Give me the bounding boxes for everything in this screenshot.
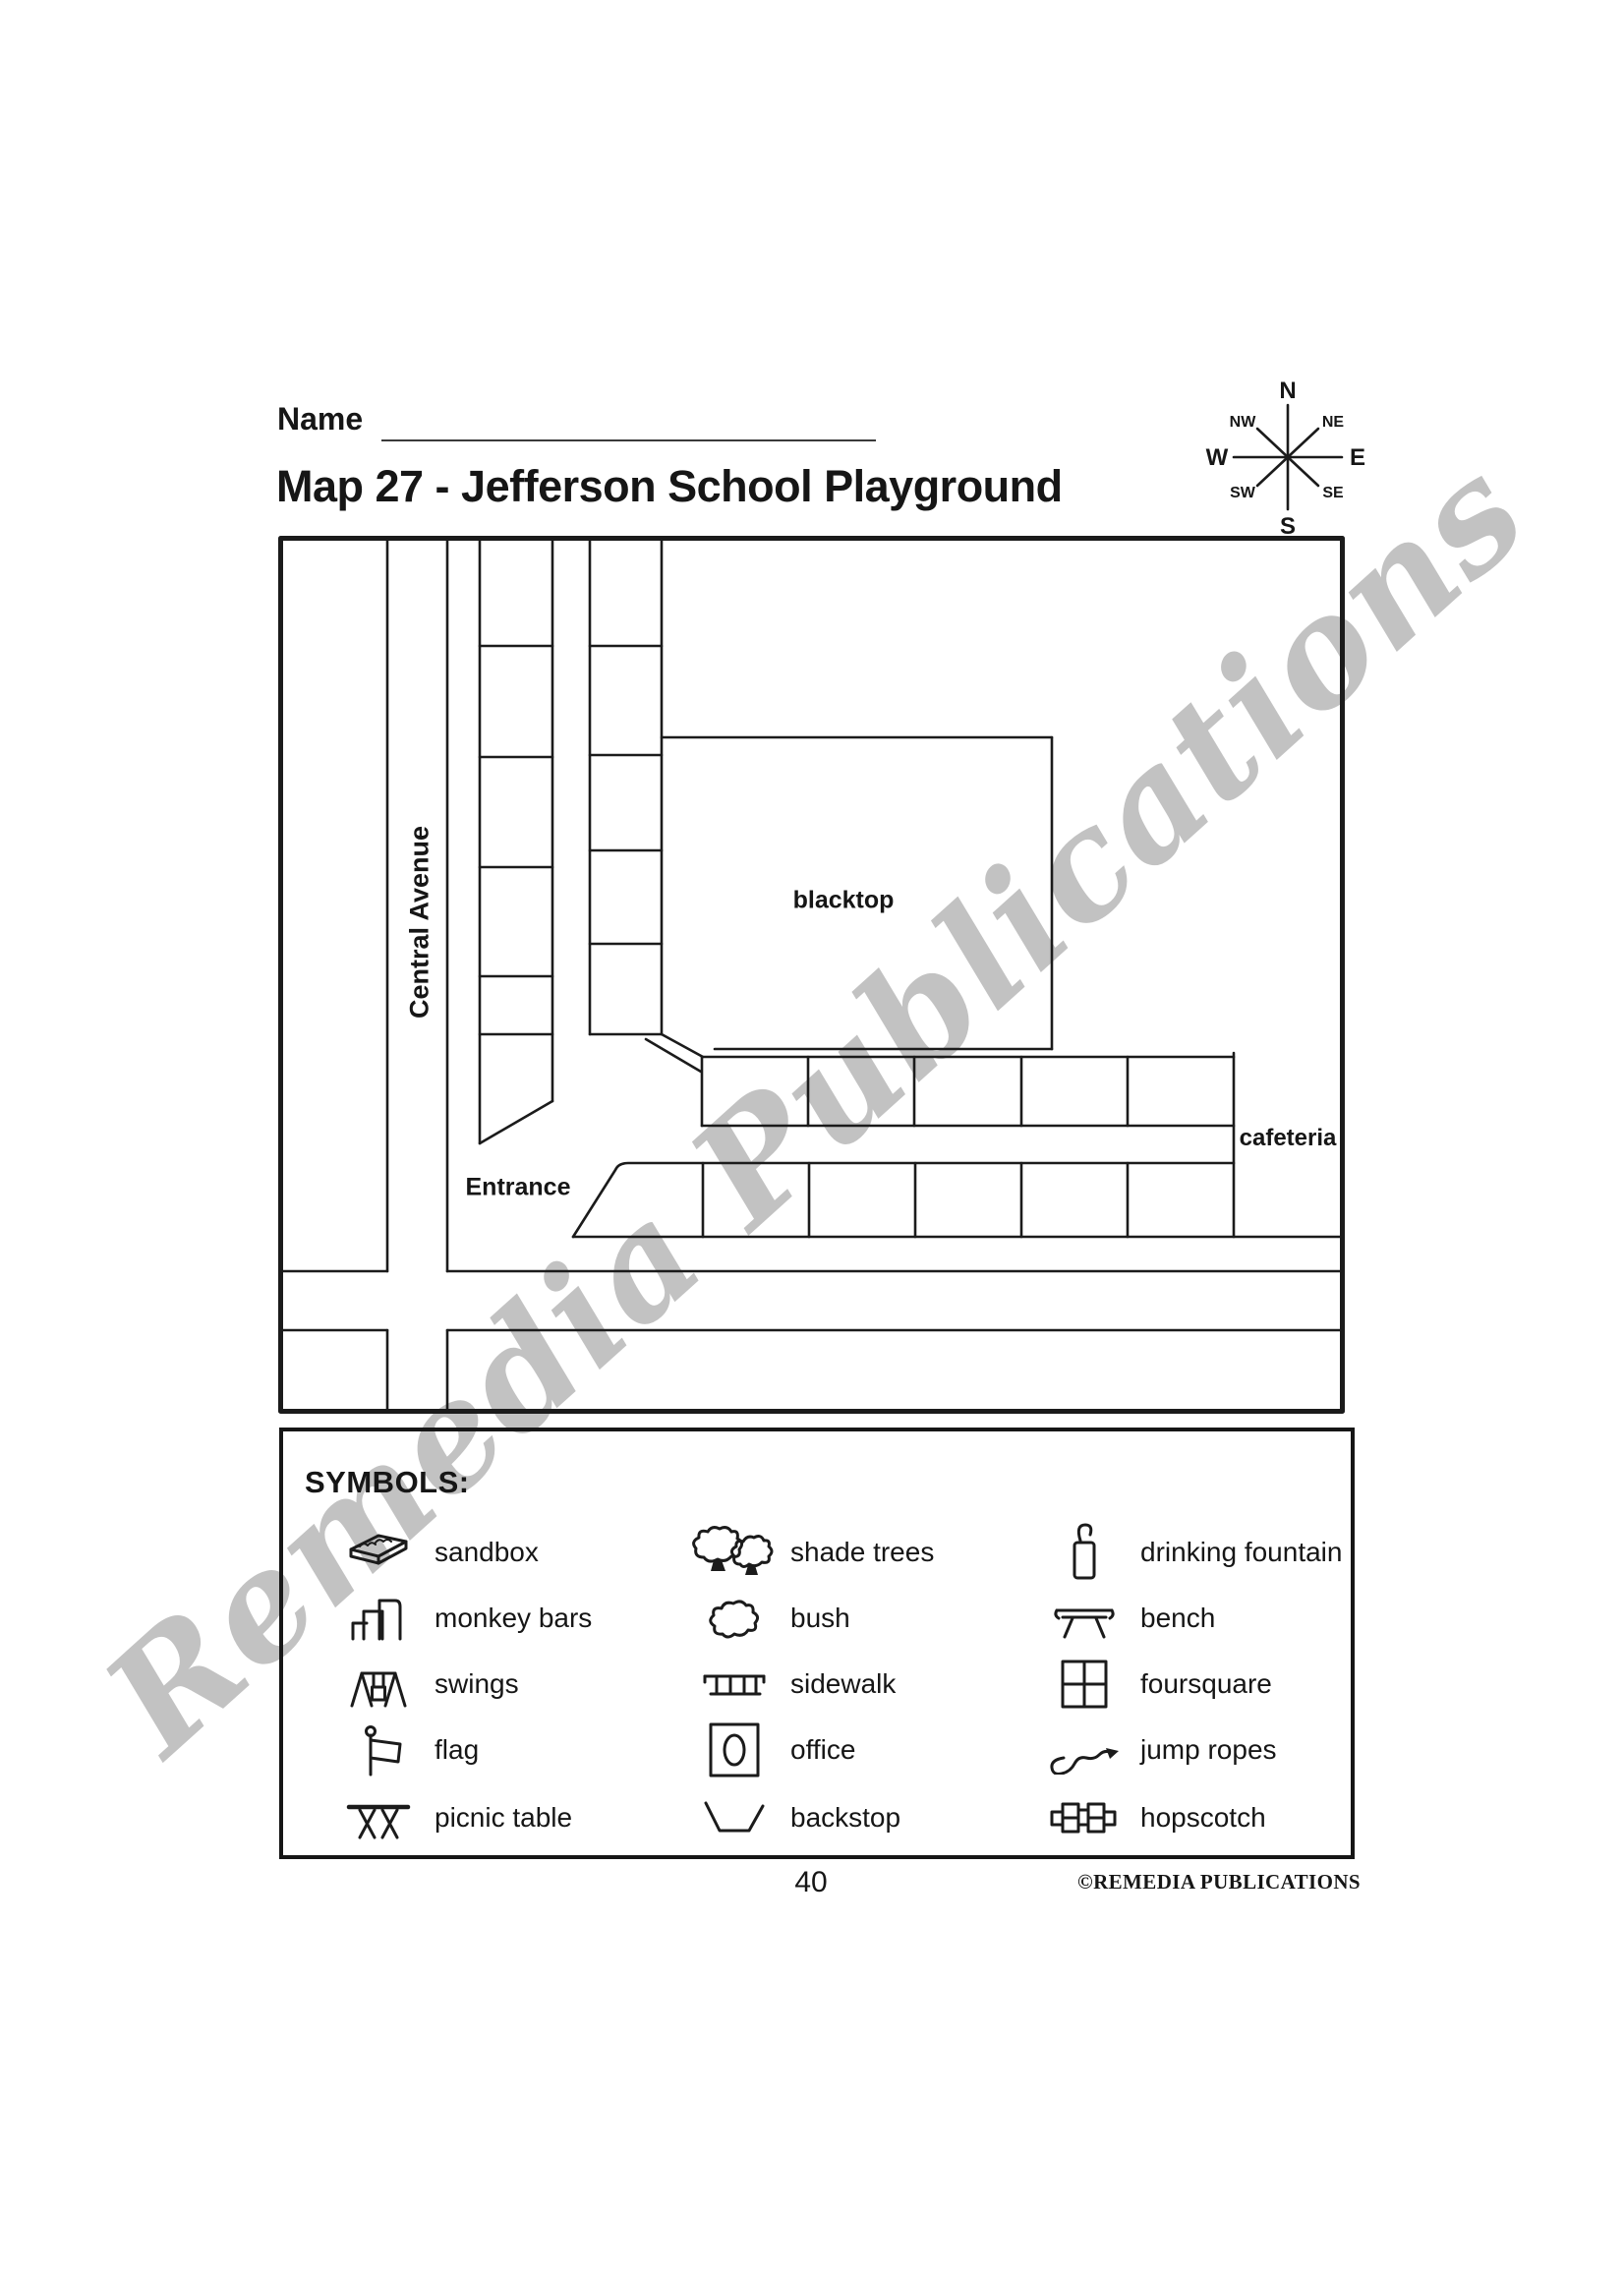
legend-label: sandbox bbox=[435, 1537, 539, 1568]
legend-label: swings bbox=[435, 1668, 519, 1700]
legend-label: shade trees bbox=[790, 1537, 934, 1568]
sidewalk-strip-left bbox=[480, 540, 552, 1143]
legend-label: jump ropes bbox=[1140, 1734, 1277, 1766]
compass-sw: SW bbox=[1230, 485, 1256, 501]
legend-item-sidewalk: sidewalk bbox=[686, 1653, 896, 1716]
swings-icon bbox=[330, 1653, 427, 1716]
legend-item-backstop: backstop bbox=[686, 1786, 900, 1849]
drinking-fountain-icon bbox=[1036, 1521, 1132, 1584]
legend-heading: SYMBOLS: bbox=[305, 1465, 470, 1500]
bench-icon bbox=[1036, 1587, 1132, 1650]
office-icon bbox=[686, 1719, 783, 1781]
monkey-bars-icon bbox=[330, 1587, 427, 1650]
legend-item-picnic-table: picnic table bbox=[330, 1786, 572, 1849]
legend-item-jump-ropes: jump ropes bbox=[1036, 1719, 1277, 1781]
picnic-table-icon bbox=[330, 1786, 427, 1849]
legend-item-sandbox: sandbox bbox=[330, 1521, 539, 1584]
hopscotch-icon bbox=[1036, 1786, 1132, 1849]
legend-label: sidewalk bbox=[790, 1668, 896, 1700]
legend-item-drinking-fountain: drinking fountain bbox=[1036, 1521, 1342, 1584]
legend-item-bench: bench bbox=[1036, 1587, 1215, 1650]
sidewalk-strip-right bbox=[590, 540, 662, 1034]
cafeteria-label: cafeteria bbox=[1240, 1125, 1337, 1152]
page-title: Map 27 - Jefferson School Playground bbox=[276, 461, 1063, 512]
sandbox-icon bbox=[330, 1521, 427, 1584]
page-number: 40 bbox=[782, 1866, 841, 1899]
compass-s: S bbox=[1280, 513, 1296, 537]
legend-item-hopscotch: hopscotch bbox=[1036, 1786, 1266, 1849]
foursquare-icon bbox=[1036, 1653, 1132, 1716]
compass-n: N bbox=[1279, 381, 1296, 404]
compass-nw: NW bbox=[1230, 414, 1257, 431]
legend-label: office bbox=[790, 1734, 855, 1766]
legend-label: bench bbox=[1140, 1603, 1215, 1634]
legend-item-foursquare: foursquare bbox=[1036, 1653, 1272, 1716]
legend-label: hopscotch bbox=[1140, 1802, 1266, 1834]
legend-label: backstop bbox=[790, 1802, 900, 1834]
compass-rose: N S W E NW NE SW SE bbox=[1194, 381, 1381, 537]
cross-street-road bbox=[282, 1271, 1341, 1330]
compass-se: SE bbox=[1322, 485, 1344, 501]
symbols-legend: SYMBOLS: sandbox bbox=[279, 1428, 1355, 1859]
name-blank-line bbox=[381, 439, 876, 441]
name-label: Name bbox=[277, 401, 363, 437]
map-border bbox=[281, 539, 1343, 1412]
copyright-notice: ©REMEDIA PUBLICATIONS bbox=[1077, 1870, 1361, 1895]
flag-icon bbox=[330, 1719, 427, 1781]
legend-item-swings: swings bbox=[330, 1653, 519, 1716]
legend-label: drinking fountain bbox=[1140, 1537, 1342, 1568]
entrance-label: Entrance bbox=[466, 1174, 571, 1202]
sidewalk-icon bbox=[686, 1653, 783, 1716]
legend-label: bush bbox=[790, 1603, 850, 1634]
bush-icon bbox=[686, 1587, 783, 1650]
worksheet-page: Remedia Publications Name Map 27 - Jeffe… bbox=[0, 0, 1624, 2274]
legend-label: picnic table bbox=[435, 1802, 572, 1834]
legend-label: monkey bars bbox=[435, 1603, 592, 1634]
legend-item-flag: flag bbox=[330, 1719, 479, 1781]
school-building bbox=[573, 1057, 1341, 1237]
legend-item-bush: bush bbox=[686, 1587, 850, 1650]
legend-label: foursquare bbox=[1140, 1668, 1272, 1700]
legend-item-monkey-bars: monkey bars bbox=[330, 1587, 592, 1650]
legend-label: flag bbox=[435, 1734, 479, 1766]
central-avenue-label: Central Avenue bbox=[405, 826, 435, 1019]
blacktop-label: blacktop bbox=[793, 887, 895, 915]
compass-ne: NE bbox=[1322, 414, 1345, 431]
compass-w: W bbox=[1206, 444, 1229, 471]
compass-e: E bbox=[1350, 444, 1365, 471]
legend-item-shade-trees: shade trees bbox=[686, 1521, 934, 1584]
walkway-connector bbox=[646, 1034, 703, 1072]
backstop-icon bbox=[686, 1786, 783, 1849]
playground-map bbox=[278, 536, 1345, 1414]
legend-item-office: office bbox=[686, 1719, 855, 1781]
shade-trees-icon bbox=[686, 1521, 783, 1584]
jump-ropes-icon bbox=[1036, 1719, 1132, 1781]
